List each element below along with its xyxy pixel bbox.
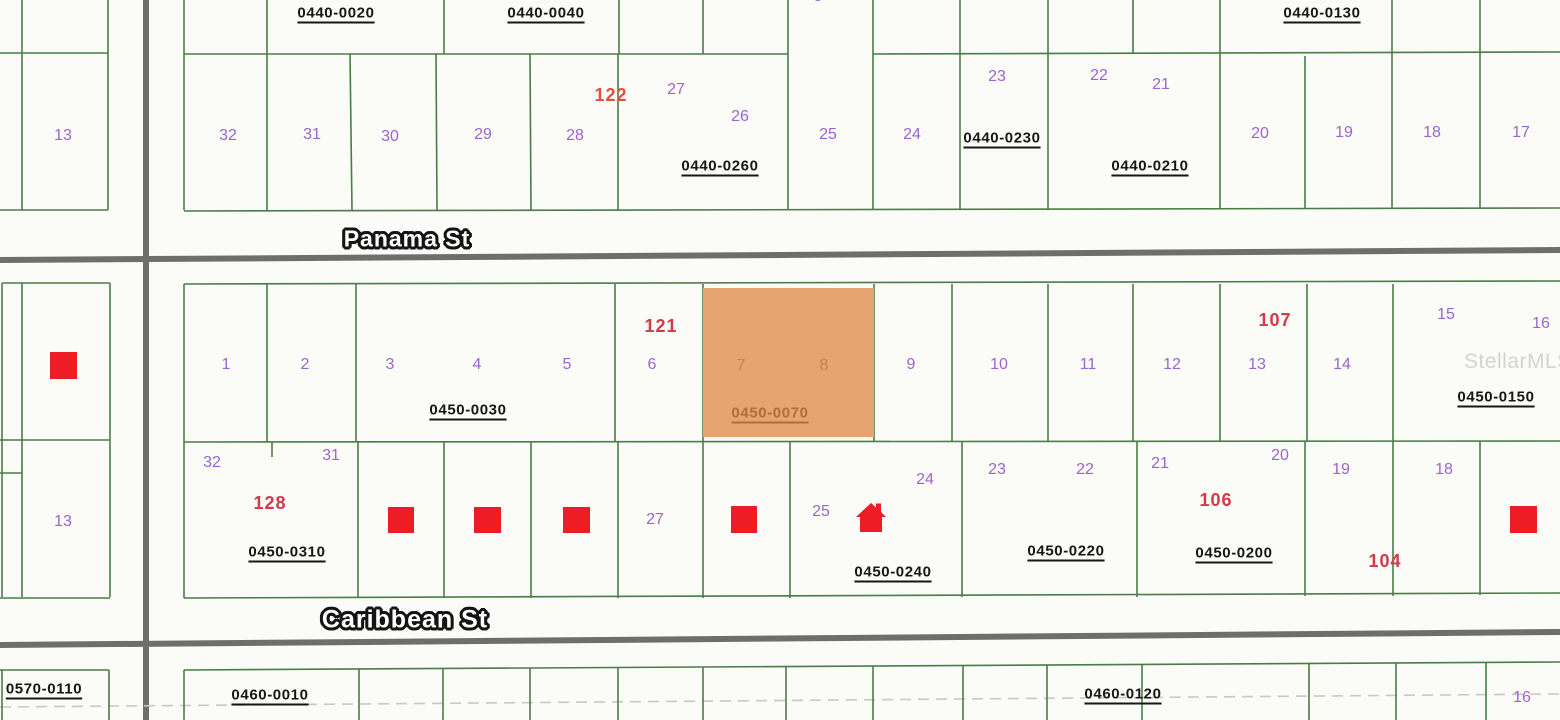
parcel-id-label[interactable]: 0460-0120 — [1084, 687, 1161, 702]
block-number: 122 — [594, 86, 627, 104]
parcel-id-label[interactable]: 0440-0230 — [963, 131, 1040, 146]
lot-number: 5 — [563, 357, 572, 373]
lot-number: 8 — [814, 0, 823, 5]
parcel-map[interactable]: 0450-0070 Panama St Caribbean St Stellar… — [0, 0, 1560, 720]
parcel-id-label[interactable]: 0460-0010 — [231, 688, 308, 703]
block-number: 106 — [1199, 491, 1232, 509]
parcel-id-label[interactable]: 0450-0240 — [854, 565, 931, 580]
lot-number: 31 — [322, 448, 340, 464]
lot-number: 15 — [1437, 307, 1455, 323]
lot-number: 28 — [566, 128, 584, 144]
block-number: 104 — [1368, 552, 1401, 570]
building-marker — [1510, 506, 1537, 533]
lot-number: 23 — [988, 69, 1006, 85]
lot-number: 12 — [1163, 357, 1181, 373]
lot-number: 26 — [731, 109, 749, 125]
parcel-id-label[interactable]: 0440-0130 — [1283, 6, 1360, 21]
building-marker — [50, 352, 77, 379]
parcel-id-label[interactable]: 0570-0110 — [6, 682, 82, 697]
parcel-id-label[interactable]: 0450-0200 — [1195, 546, 1272, 561]
block-number: 107 — [1258, 311, 1291, 329]
parcel-id-label[interactable]: 0450-0030 — [429, 403, 506, 418]
lot-number: 32 — [219, 128, 237, 144]
street-label-panama-st: Panama St — [344, 228, 471, 251]
lot-number: 18 — [1435, 462, 1453, 478]
stellar-mls-watermark: StellarMLS — [1464, 351, 1560, 372]
block-number: 121 — [644, 317, 677, 335]
lot-number: 14 — [1333, 357, 1351, 373]
lot-number: 1 — [222, 357, 231, 373]
parcel-id-label[interactable]: 0450-0310 — [248, 545, 325, 560]
lot-number: 13 — [54, 514, 72, 530]
street-label-caribbean-st: Caribbean St — [322, 608, 488, 633]
lot-number: 31 — [303, 127, 321, 143]
lot-number: 32 — [203, 455, 221, 471]
lot-number: 24 — [916, 472, 934, 488]
house-icon — [855, 501, 887, 533]
selected-parcel-lot-number: 7 — [737, 358, 746, 374]
lot-number: 2 — [301, 357, 310, 373]
lot-number: 4 — [473, 357, 482, 373]
building-marker — [388, 507, 414, 533]
lot-number: 25 — [812, 504, 830, 520]
parcel-id-label[interactable]: 0450-0220 — [1027, 544, 1104, 559]
parcel-id-label[interactable]: 0440-0210 — [1111, 159, 1188, 174]
building-marker — [474, 507, 501, 533]
parcel-id-label[interactable]: 0440-0040 — [507, 6, 584, 21]
lot-number: 29 — [474, 127, 492, 143]
lot-number: 22 — [1090, 68, 1108, 84]
lot-number: 21 — [1151, 456, 1169, 472]
lot-number: 24 — [903, 127, 921, 143]
lot-number: 27 — [667, 82, 685, 98]
selected-parcel-lot-number: 8 — [820, 358, 829, 374]
parcel-id-label[interactable]: 0440-0260 — [681, 159, 758, 174]
lot-number: 10 — [990, 357, 1008, 373]
lot-number: 11 — [1080, 357, 1097, 373]
selected-parcel-id-label[interactable]: 0450-0070 — [731, 406, 808, 421]
lot-number: 23 — [988, 462, 1006, 478]
lot-number: 6 — [648, 357, 657, 373]
building-marker — [563, 507, 590, 533]
lot-number: 25 — [819, 127, 837, 143]
lot-number: 13 — [1248, 357, 1266, 373]
lot-number: 18 — [1423, 125, 1441, 141]
lot-number: 27 — [646, 512, 664, 528]
parcel-id-label[interactable]: 0450-0150 — [1457, 390, 1534, 405]
lot-number: 20 — [1251, 126, 1269, 142]
parcel-id-label[interactable]: 0440-0020 — [297, 6, 374, 21]
lot-number: 17 — [1512, 125, 1530, 141]
lot-number: 16 — [1513, 690, 1531, 706]
lot-number: 13 — [54, 128, 72, 144]
lot-number: 3 — [386, 357, 395, 373]
lot-number: 19 — [1335, 125, 1353, 141]
lot-number: 21 — [1152, 77, 1170, 93]
lot-number: 9 — [907, 357, 916, 373]
lot-number: 30 — [381, 129, 399, 145]
building-marker — [731, 506, 757, 533]
lot-number: 16 — [1532, 316, 1550, 332]
lot-number: 19 — [1332, 462, 1350, 478]
block-number: 128 — [253, 494, 286, 512]
lot-number: 22 — [1076, 462, 1094, 478]
lot-number: 20 — [1271, 448, 1289, 464]
